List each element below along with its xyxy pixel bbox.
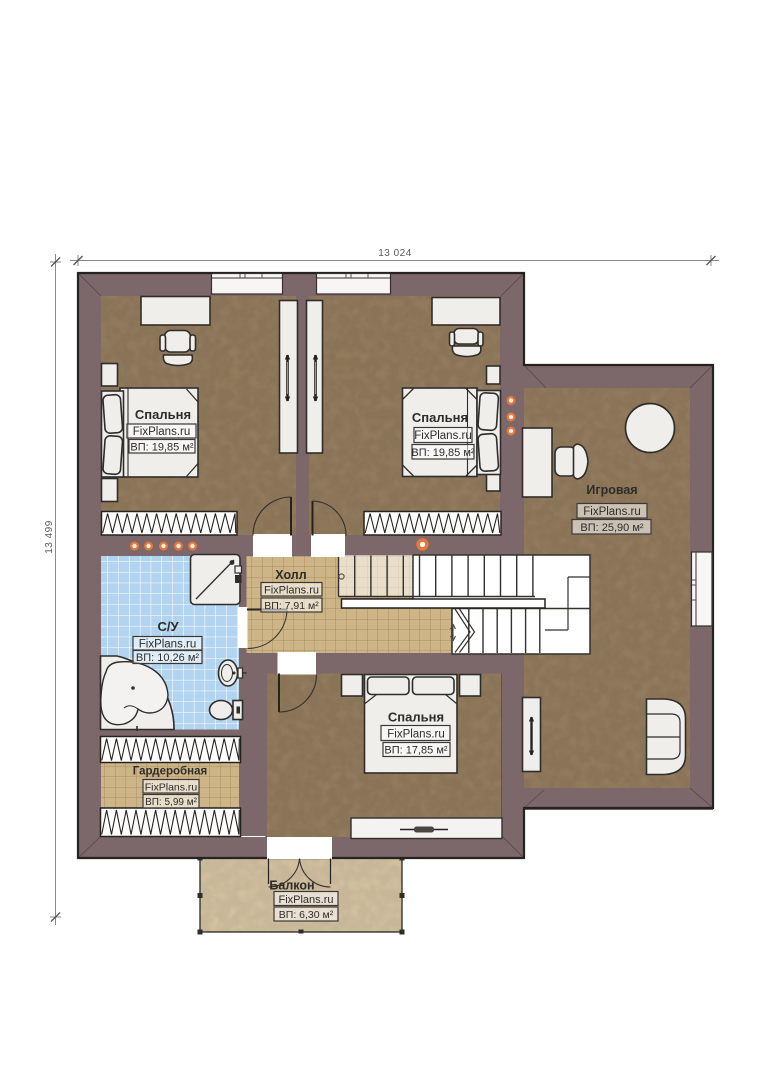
svg-text:ВП: 10,26 м²: ВП: 10,26 м² [136, 652, 200, 664]
svg-text:ВП: 7,91 м²: ВП: 7,91 м² [264, 600, 319, 612]
svg-text:Спальня: Спальня [388, 710, 444, 725]
svg-text:ВП: 19,85 м²: ВП: 19,85 м² [411, 447, 475, 459]
svg-text:ВП: 25,90 м²: ВП: 25,90 м² [580, 522, 644, 534]
svg-text:FixPlans.ru: FixPlans.ru [139, 639, 197, 651]
svg-text:Игровая: Игровая [586, 483, 637, 497]
svg-text:ВП: 17,85 м²: ВП: 17,85 м² [384, 745, 448, 757]
svg-text:Холл: Холл [275, 568, 306, 582]
svg-text:ВП: 19,85 м²: ВП: 19,85 м² [130, 442, 194, 454]
svg-text:13 024: 13 024 [378, 248, 412, 259]
svg-text:FixPlans.ru: FixPlans.ru [387, 729, 445, 741]
svg-text:Гардеробная: Гардеробная [133, 766, 207, 778]
svg-text:Спальня: Спальня [412, 410, 468, 425]
svg-text:FixPlans.ru: FixPlans.ru [583, 506, 641, 518]
svg-text:FixPlans.ru: FixPlans.ru [414, 430, 472, 442]
svg-text:ВП: 5,99 м²: ВП: 5,99 м² [145, 797, 198, 808]
svg-text:Балкон: Балкон [269, 879, 314, 893]
svg-text:FixPlans.ru: FixPlans.ru [278, 894, 333, 906]
svg-text:С/У: С/У [157, 619, 179, 634]
svg-text:13 499: 13 499 [44, 520, 55, 554]
svg-text:FixPlans.ru: FixPlans.ru [133, 426, 191, 438]
svg-text:FixPlans.ru: FixPlans.ru [264, 585, 319, 597]
svg-text:Спальня: Спальня [135, 407, 191, 422]
svg-text:ВП: 6,30 м²: ВП: 6,30 м² [279, 909, 334, 921]
svg-text:FixPlans.ru: FixPlans.ru [145, 782, 198, 794]
